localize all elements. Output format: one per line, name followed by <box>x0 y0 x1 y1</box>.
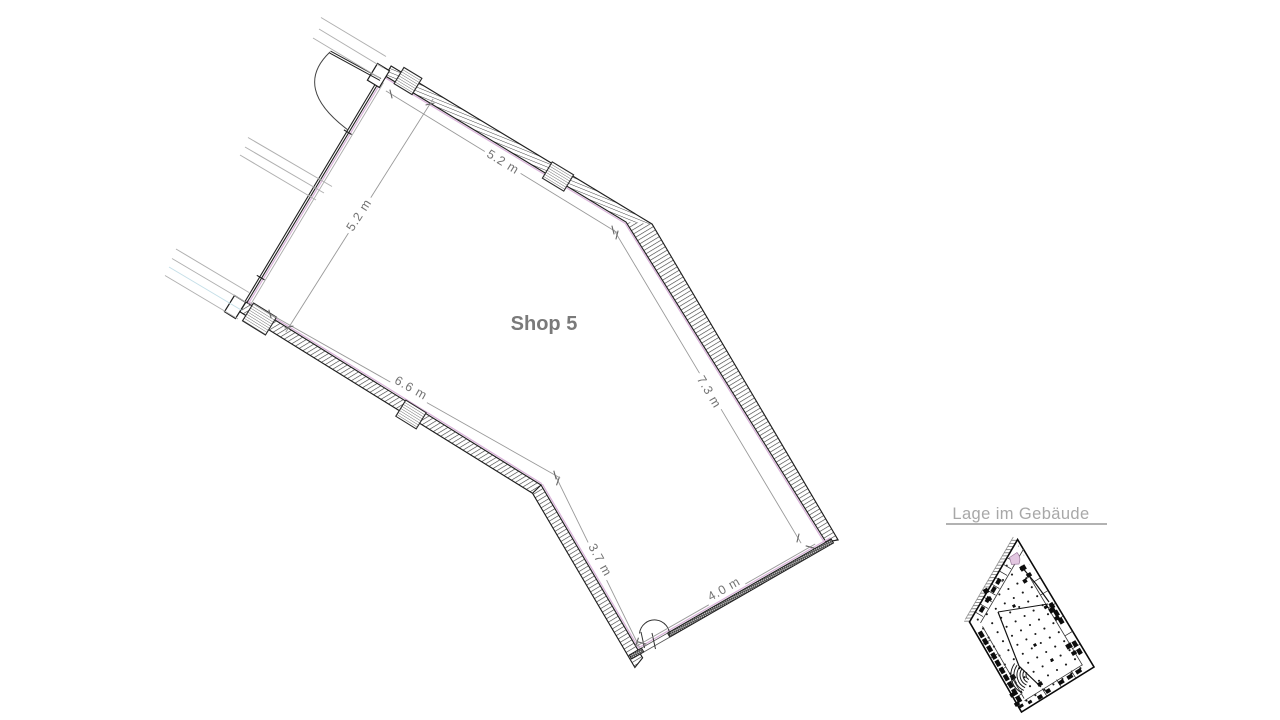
svg-text:Lage im Gebäude: Lage im Gebäude <box>952 505 1089 523</box>
svg-text:Shop 5: Shop 5 <box>511 313 578 335</box>
